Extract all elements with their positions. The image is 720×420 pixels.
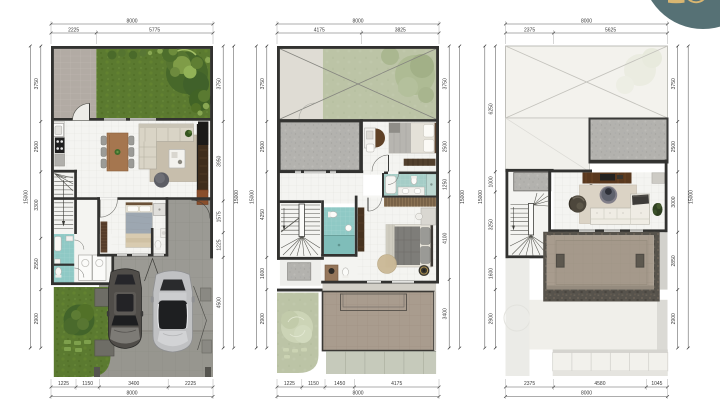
svg-text:1600: 1600 <box>260 268 266 279</box>
svg-text:3300: 3300 <box>34 199 40 210</box>
svg-text:1225: 1225 <box>58 381 69 387</box>
svg-text:1150: 1150 <box>82 381 93 387</box>
svg-text:2500: 2500 <box>442 141 448 152</box>
svg-text:1045: 1045 <box>651 381 662 387</box>
svg-text:2850: 2850 <box>671 255 677 266</box>
svg-text:1000: 1000 <box>489 176 495 187</box>
svg-text:1575: 1575 <box>216 211 222 222</box>
svg-text:3000: 3000 <box>671 196 677 207</box>
svg-text:15000: 15000 <box>250 190 256 204</box>
svg-text:2900: 2900 <box>489 313 495 324</box>
svg-text:4580: 4580 <box>594 381 605 387</box>
svg-text:4175: 4175 <box>314 27 325 33</box>
svg-text:2225: 2225 <box>185 381 196 387</box>
svg-text:4500: 4500 <box>216 297 222 308</box>
svg-text:2500: 2500 <box>260 141 266 152</box>
svg-text:3750: 3750 <box>216 78 222 89</box>
svg-text:3400: 3400 <box>128 381 139 387</box>
svg-text:5625: 5625 <box>605 27 616 33</box>
svg-text:2900: 2900 <box>34 313 40 324</box>
svg-text:15000: 15000 <box>24 190 30 204</box>
svg-text:2375: 2375 <box>524 27 535 33</box>
svg-text:1600: 1600 <box>489 268 495 279</box>
svg-text:3750: 3750 <box>34 78 40 89</box>
svg-text:1250: 1250 <box>442 179 448 190</box>
svg-text:15000: 15000 <box>234 190 240 204</box>
svg-text:15000: 15000 <box>478 190 484 204</box>
svg-text:4100: 4100 <box>442 232 448 243</box>
svg-text:8000: 8000 <box>581 18 592 24</box>
svg-text:3400: 3400 <box>442 308 448 319</box>
svg-text:15000: 15000 <box>460 190 466 204</box>
svg-text:6250: 6250 <box>489 103 495 114</box>
svg-text:3250: 3250 <box>489 219 495 230</box>
svg-text:2550: 2550 <box>34 258 40 269</box>
svg-text:4250: 4250 <box>260 209 266 220</box>
svg-text:2500: 2500 <box>34 141 40 152</box>
svg-text:15000: 15000 <box>688 190 694 204</box>
svg-text:8000: 8000 <box>352 391 363 397</box>
svg-text:3950: 3950 <box>216 155 222 166</box>
svg-text:2225: 2225 <box>68 27 79 33</box>
svg-text:3750: 3750 <box>442 78 448 89</box>
svg-text:1450: 1450 <box>334 381 345 387</box>
svg-text:2375: 2375 <box>524 381 535 387</box>
svg-text:3825: 3825 <box>395 27 406 33</box>
svg-text:8000: 8000 <box>352 18 363 24</box>
svg-text:2500: 2500 <box>671 141 677 152</box>
svg-text:8000: 8000 <box>126 391 137 397</box>
svg-text:3750: 3750 <box>260 78 266 89</box>
svg-text:1150: 1150 <box>308 381 319 387</box>
svg-text:8000: 8000 <box>581 391 592 397</box>
svg-text:3750: 3750 <box>671 78 677 89</box>
svg-text:1225: 1225 <box>284 381 295 387</box>
svg-text:2900: 2900 <box>260 313 266 324</box>
svg-text:2900: 2900 <box>671 313 677 324</box>
svg-text:4175: 4175 <box>391 381 402 387</box>
svg-text:5775: 5775 <box>149 27 160 33</box>
svg-text:8000: 8000 <box>126 18 137 24</box>
svg-text:1225: 1225 <box>216 239 222 250</box>
